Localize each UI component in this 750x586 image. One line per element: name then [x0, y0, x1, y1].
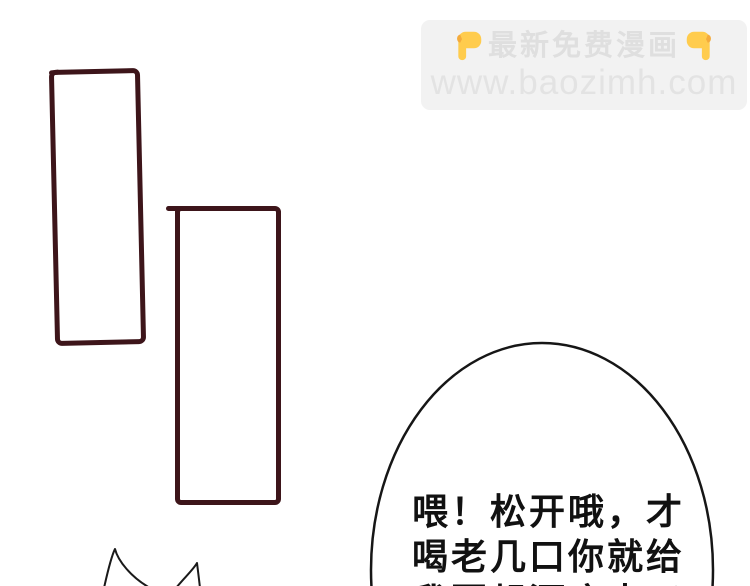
site-watermark-badge: 最新免费漫画 www.baozimh.com: [421, 20, 747, 110]
pointing-down-icon: [684, 29, 717, 62]
dialogue-line-3-cropped: 我耍起酒疯来了: [412, 579, 685, 586]
hair-spike-left: [104, 549, 150, 586]
dialogue-line-1: 喂！松开哦，才: [412, 489, 685, 534]
speech-bubble-text: 喂！松开哦，才 喝老几口你就给 我耍起酒疯来了: [412, 489, 685, 586]
watermark-headline: 最新免费漫画: [451, 29, 717, 63]
watermark-headline-text: 最新免费漫画: [488, 29, 680, 63]
dialogue-line-2: 喝老几口你就给: [412, 534, 685, 579]
hair-spike-right: [176, 563, 200, 586]
pointing-down-icon: [451, 29, 484, 62]
comic-page: 喂！松开哦，才 喝老几口你就给 我耍起酒疯来了 最新免费漫画 w: [0, 0, 750, 586]
watermark-url: www.baozimh.com: [431, 64, 738, 102]
